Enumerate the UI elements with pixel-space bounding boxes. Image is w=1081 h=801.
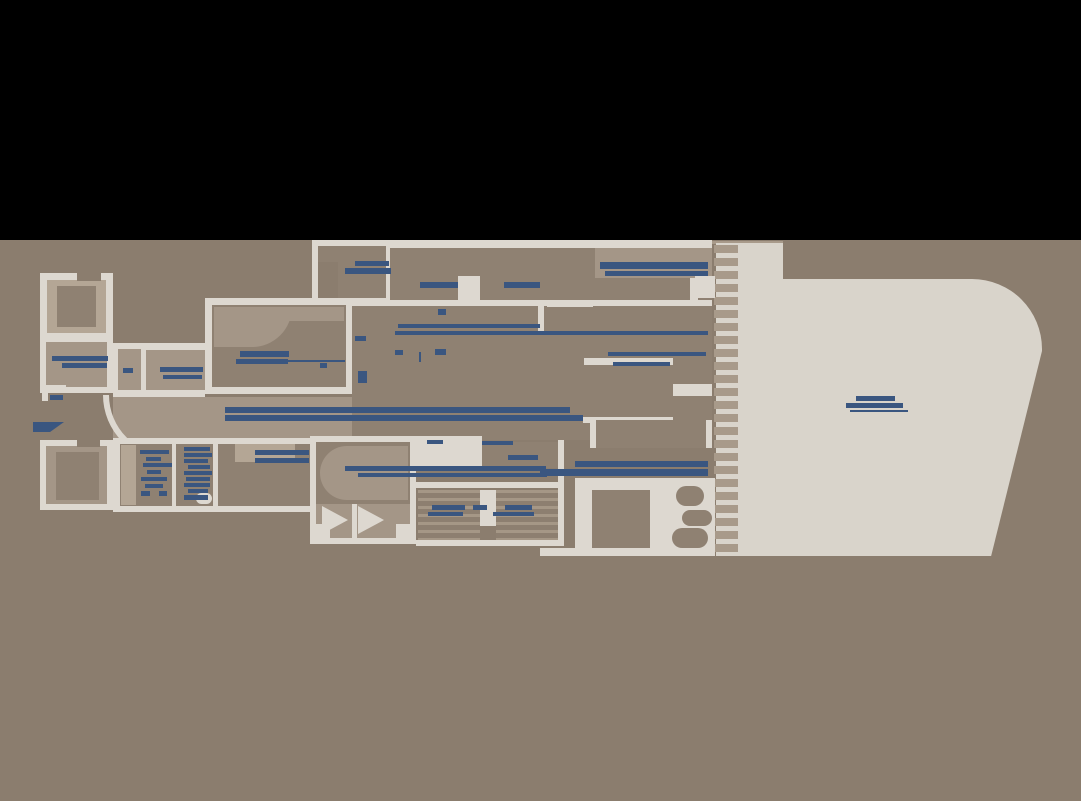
wall-segment: [673, 384, 712, 396]
label-bar: [255, 450, 309, 455]
cabin-notch: [318, 262, 338, 298]
label-bar: [398, 324, 540, 328]
room-floor: [56, 452, 99, 500]
label-bar: [608, 352, 706, 356]
label-bar: [160, 367, 203, 372]
wall-segment: [538, 300, 544, 334]
label-bar: [428, 512, 463, 516]
label-bar: [145, 484, 163, 488]
label-bar: [395, 350, 403, 355]
hull-top-wall: [390, 240, 712, 248]
label-bar: [435, 349, 446, 355]
label-bar: [355, 336, 366, 341]
label-bar: [505, 505, 532, 510]
aft-deck: [716, 279, 1042, 556]
label-bar: [184, 447, 210, 451]
label-bar: [427, 440, 443, 444]
deck-plan: [0, 0, 1081, 801]
label-bar: [613, 362, 670, 366]
label-bar: [236, 359, 288, 364]
label-bar: [575, 461, 708, 467]
label-bar: [184, 483, 210, 487]
plan-layer: [0, 0, 1081, 801]
hull-bottom-wall: [540, 548, 715, 556]
contour-shape: [672, 528, 708, 548]
label-bar: [473, 505, 487, 510]
label-bar: [358, 473, 547, 477]
label-bar: [184, 459, 208, 463]
contour-shape: [676, 486, 704, 506]
label-bar: [355, 261, 389, 266]
label-bar: [146, 457, 161, 461]
label-bar: [358, 371, 367, 383]
label-bar: [147, 470, 161, 474]
room-floor: [121, 445, 136, 505]
room-floor: [596, 420, 706, 448]
label-bar: [320, 363, 327, 368]
label-bar: [225, 415, 583, 421]
fixture: [316, 524, 330, 538]
label-bar: [395, 331, 708, 335]
label-bar: [605, 271, 708, 276]
label-bar: [143, 463, 172, 467]
label-bar: [540, 469, 708, 476]
label-bar: [184, 471, 212, 475]
label-bar: [432, 505, 465, 510]
label-bar: [184, 495, 208, 500]
label-bar: [188, 465, 210, 469]
label-bar: [159, 491, 167, 496]
wall-segment: [590, 420, 596, 448]
label-bar: [140, 450, 169, 454]
wall-segment: [48, 385, 66, 390]
wall-segment: [146, 343, 205, 350]
label-bar: [345, 466, 546, 471]
label-bar: [52, 356, 108, 361]
wall-segment: [462, 436, 482, 470]
door-gap: [77, 440, 100, 447]
wall-segment: [416, 482, 558, 488]
label-bar: [240, 351, 289, 357]
stairs: [496, 490, 558, 542]
comb-edge: [714, 245, 738, 555]
stairs: [418, 490, 480, 542]
label-bar: [482, 441, 513, 445]
label-bar: [345, 268, 391, 274]
label-bar: [846, 403, 903, 408]
label-bar: [600, 262, 708, 269]
band-floor: [390, 248, 595, 278]
label-bar: [141, 491, 150, 496]
label-bar: [850, 410, 908, 412]
label-bar: [508, 455, 538, 460]
label-bar: [33, 422, 64, 432]
wall-segment: [352, 504, 357, 538]
label-bar: [504, 282, 540, 288]
label-bar: [186, 477, 210, 481]
label-bar: [419, 352, 421, 362]
door-gap: [77, 273, 101, 281]
contour-shape: [682, 510, 712, 526]
label-bar: [225, 407, 570, 413]
hatch: [592, 490, 650, 548]
label-bar: [50, 395, 63, 400]
label-bar: [184, 453, 212, 457]
label-bar: [438, 309, 446, 315]
wall-segment: [558, 440, 564, 546]
label-bar: [62, 363, 107, 368]
wall-segment: [458, 276, 480, 302]
label-bar: [493, 512, 534, 516]
room-floor: [57, 286, 96, 327]
label-bar: [188, 489, 208, 493]
wall-segment: [547, 302, 593, 307]
wall-segment: [695, 276, 715, 298]
wall-segment: [416, 540, 558, 546]
label-bar: [420, 282, 458, 288]
label-bar: [141, 477, 167, 481]
label-bar: [288, 360, 345, 362]
label-bar: [856, 396, 895, 401]
wall-segment: [706, 420, 712, 448]
label-bar: [163, 375, 202, 379]
label-bar: [123, 368, 133, 373]
lounge-furniture: [214, 307, 344, 321]
fixture: [396, 524, 410, 538]
label-bar: [255, 458, 309, 463]
